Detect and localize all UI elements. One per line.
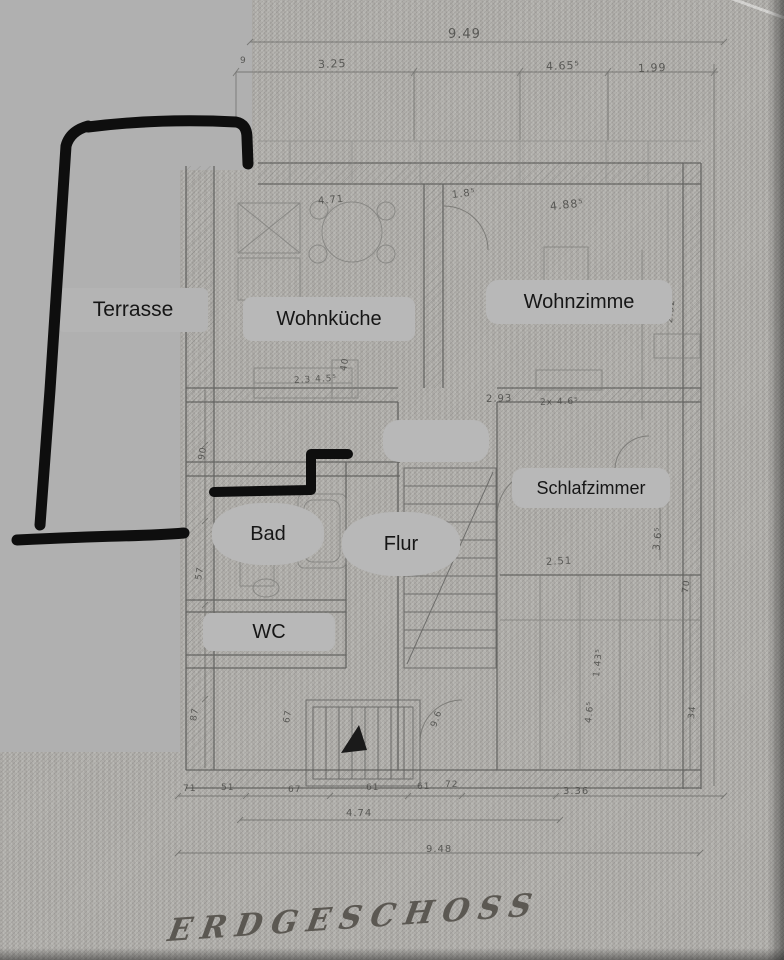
marker-outline — [0, 0, 784, 960]
scan-edge-right — [768, 0, 784, 960]
scan-edge-bottom — [0, 948, 784, 960]
marker-step — [214, 454, 348, 492]
scanned-floorplan-page: 9.4993.254.65⁵1.994.711.8⁵4.88⁵2.3 4.5⁵4… — [0, 0, 784, 960]
